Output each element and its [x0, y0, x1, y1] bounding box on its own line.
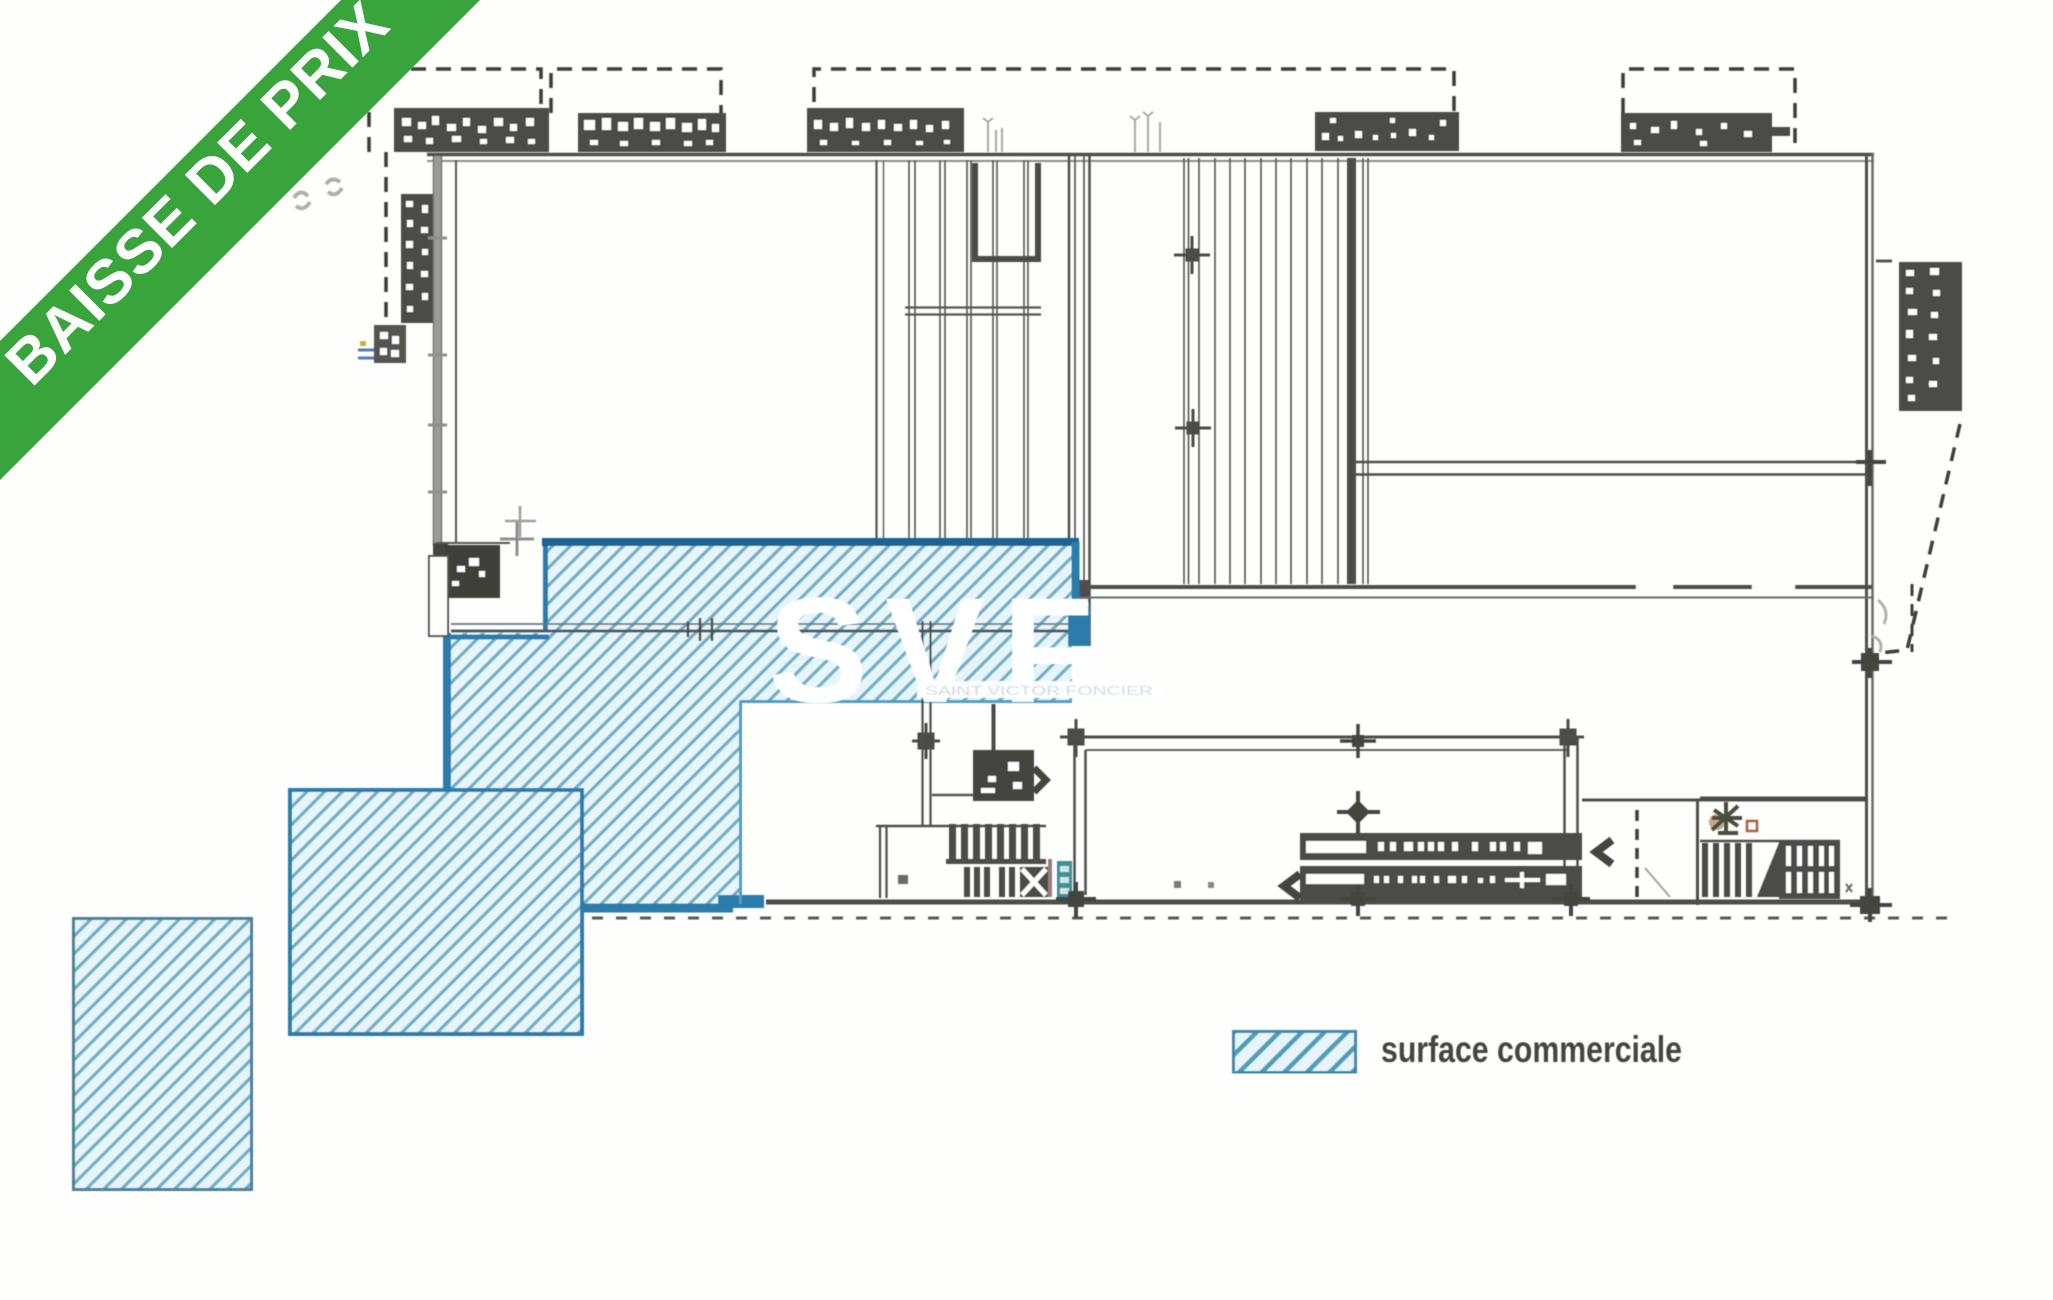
svg-text:SVF: SVF	[768, 566, 1111, 734]
svg-text:SAINT VICTOR FONCIER: SAINT VICTOR FONCIER	[925, 683, 1153, 698]
svg-text:surface commerciale: surface commerciale	[1381, 1029, 1682, 1070]
